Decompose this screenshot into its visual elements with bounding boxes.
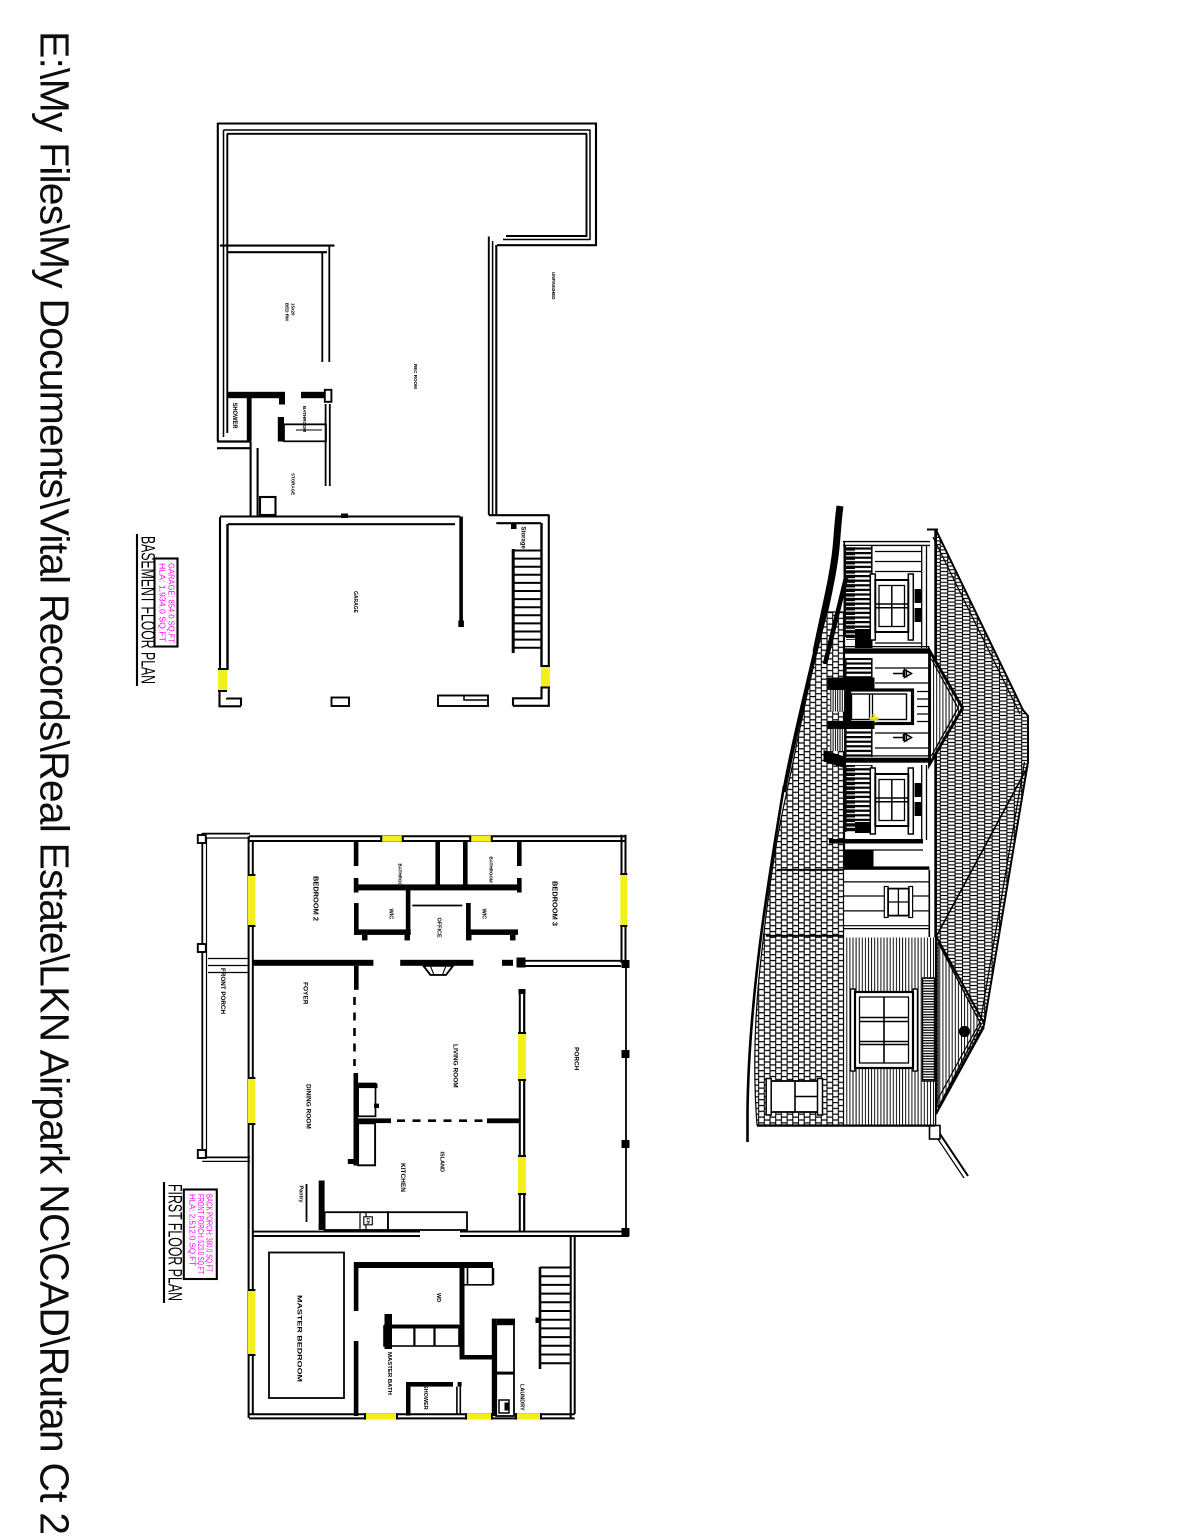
svg-text:KITCHEN: KITCHEN <box>399 1163 406 1192</box>
svg-text:Pantry: Pantry <box>298 1186 304 1204</box>
svg-text:BEDROOM 2: BEDROOM 2 <box>312 876 319 921</box>
svg-text:BATHROOM: BATHROOM <box>302 406 307 432</box>
svg-text:WIC: WIC <box>481 909 487 920</box>
svg-text:Storage: Storage <box>520 527 526 550</box>
svg-text:GARAGE: GARAGE <box>352 591 358 614</box>
svg-text:BACK PORCH: 380.0 SQ.FT: BACK PORCH: 380.0 SQ.FT <box>205 1194 214 1272</box>
svg-text:LIVING ROOM: LIVING ROOM <box>452 1044 459 1088</box>
svg-text:ISLAND: ISLAND <box>439 1152 445 1173</box>
svg-text:HLA: 2,512.0 SQ.FT: HLA: 2,512.0 SQ.FT <box>188 1194 197 1266</box>
svg-text:UNFINISHED: UNFINISHED <box>551 272 556 300</box>
svg-text:MASTER BATH: MASTER BATH <box>386 1352 392 1395</box>
svg-text:GARAGE: 854.0 SQ.FT: GARAGE: 854.0 SQ.FT <box>167 563 176 643</box>
svg-text:STORAGE: STORAGE <box>291 473 296 495</box>
svg-text:BEDROOM 3: BEDROOM 3 <box>551 881 558 926</box>
svg-text:HLA: 1,934.0 SQ.FT: HLA: 1,934.0 SQ.FT <box>158 563 167 642</box>
svg-text:SHOWER: SHOWER <box>231 403 237 430</box>
svg-text:FRONT PORCH: FRONT PORCH <box>219 968 226 1014</box>
svg-text:BED RM: BED RM <box>285 303 290 321</box>
svg-text:WD: WD <box>435 1293 441 1302</box>
svg-text:15x20: 15x20 <box>291 303 296 316</box>
svg-text:DINING ROOM: DINING ROOM <box>305 1084 312 1129</box>
svg-text:SHOWER: SHOWER <box>422 1385 428 1410</box>
svg-text:BATHROOM: BATHROOM <box>489 857 494 883</box>
svg-text:FRONT PORCH: 523.0 SQ.FT: FRONT PORCH: 523.0 SQ.FT <box>196 1194 205 1274</box>
svg-text:PORCH: PORCH <box>573 1047 580 1071</box>
svg-text:LAUNDRY: LAUNDRY <box>519 1384 525 1411</box>
svg-text:FOYER: FOYER <box>302 982 309 1005</box>
svg-text:REC ROOM: REC ROOM <box>413 364 418 389</box>
svg-text:FIRST FLOOR PLAN: FIRST FLOOR PLAN <box>164 1184 185 1301</box>
svg-text:FR: FR <box>366 1218 371 1225</box>
svg-text:MASTER BEDROOM: MASTER BEDROOM <box>296 1295 303 1382</box>
svg-text:WIC: WIC <box>388 909 394 920</box>
svg-text:OFFICE: OFFICE <box>436 918 442 938</box>
svg-text:E:\My Files\My Documents\Vital: E:\My Files\My Documents\Vital Records\R… <box>32 31 78 1535</box>
